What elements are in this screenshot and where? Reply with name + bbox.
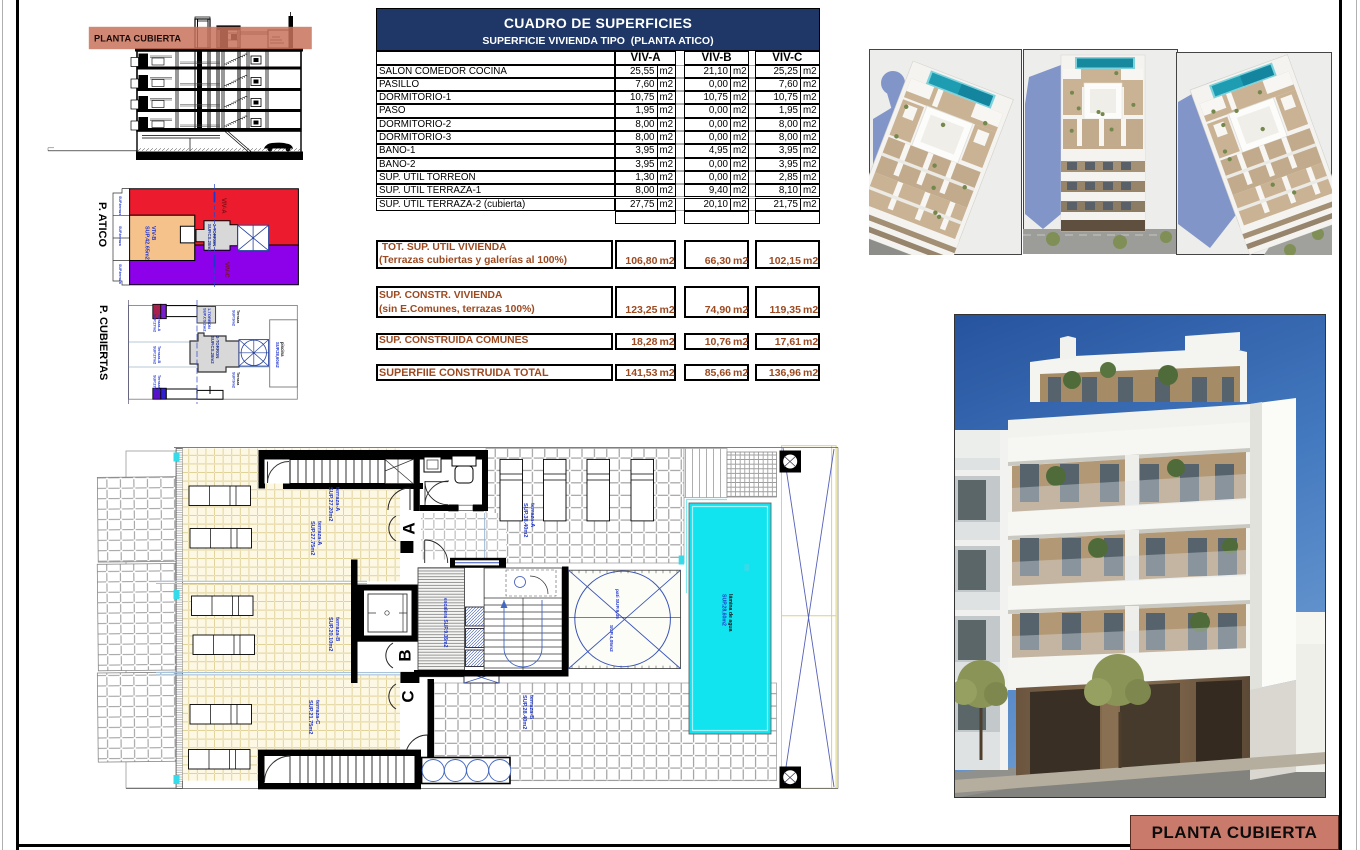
svg-text:escalera SUP.9.35m2: escalera SUP.9.35m2 (442, 598, 448, 648)
svg-text:SUP.21.75m2: SUP.21.75m2 (307, 700, 313, 734)
svg-text:B: B (396, 649, 415, 661)
svg-text:PLANTA CUBIERTA: PLANTA CUBIERTA (94, 34, 181, 44)
svg-text:terraza-A: terraza-A (529, 503, 535, 527)
svg-text:Terraza-A: Terraza-A (157, 314, 161, 331)
svg-text:SUP.27m2: SUP.27m2 (153, 346, 157, 364)
svg-text:SUP.28,60m2: SUP.28,60m2 (275, 342, 280, 368)
svg-text:Terraza-B: Terraza-B (157, 346, 161, 363)
svg-text:VIV-C: VIV-C (223, 262, 229, 278)
svg-text:terraza-A: terraza-A (316, 521, 322, 545)
svg-text:pati SUP.9,35: pati SUP.9,35 (614, 589, 620, 619)
svg-text:Terraza: Terraza (236, 310, 240, 324)
svg-text:SUP.28.40m2: SUP.28.40m2 (521, 695, 527, 729)
svg-text:SUP.27.75m2: SUP.27.75m2 (309, 521, 315, 555)
svg-text:Terraza-C: Terraza-C (157, 375, 161, 392)
svg-text:SUP.terraza: SUP.terraza (118, 264, 122, 285)
svg-text:SUP.9m2: SUP.9m2 (232, 372, 236, 388)
svg-text:SUP.CS.28m2: SUP.CS.28m2 (210, 336, 215, 364)
svg-text:SUP.terraza: SUP.terraza (118, 196, 122, 217)
svg-text:SUP.38.40m2: SUP.38.40m2 (522, 503, 528, 537)
svg-text:C: C (399, 690, 418, 702)
svg-text:SUP.4,05m2: SUP.4,05m2 (608, 625, 614, 652)
svg-text:SUP.CS.2m2: SUP.CS.2m2 (202, 308, 207, 332)
svg-text:terraza-B: terraza-B (334, 617, 340, 641)
svg-text:Terraza: Terraza (236, 372, 240, 386)
svg-text:SUP.27m2: SUP.27m2 (153, 375, 157, 393)
svg-text:VIV-B: VIV-B (150, 226, 156, 240)
svg-text:P. ATICO: P. ATICO (96, 202, 108, 247)
svg-text:SUP.27m2: SUP.27m2 (153, 314, 157, 332)
svg-text:terraza-C: terraza-C (314, 700, 320, 724)
svg-text:SUP.terraza: SUP.terraza (118, 226, 122, 247)
svg-text:SUP.20.10m2: SUP.20.10m2 (327, 617, 333, 651)
svg-text:SUP.27.20m2: SUP.27.20m2 (327, 487, 333, 521)
svg-text:A: A (400, 522, 419, 534)
svg-text:VIV-A: VIV-A (220, 198, 226, 214)
svg-text:SUP.28,60m2: SUP.28,60m2 (721, 594, 727, 626)
svg-text:terraza-A: terraza-A (334, 487, 340, 511)
svg-text:terraza-B: terraza-B (528, 695, 534, 719)
svg-text:SUP.CS.28m2: SUP.CS.28m2 (207, 224, 212, 252)
svg-text:SUP.9m2: SUP.9m2 (232, 310, 236, 326)
svg-text:lámina de agua: lámina de agua (727, 594, 733, 632)
svg-text:SUP.42.65m2: SUP.42.65m2 (144, 226, 150, 260)
svg-text:P. CUBIERTAS: P. CUBIERTAS (97, 305, 109, 380)
